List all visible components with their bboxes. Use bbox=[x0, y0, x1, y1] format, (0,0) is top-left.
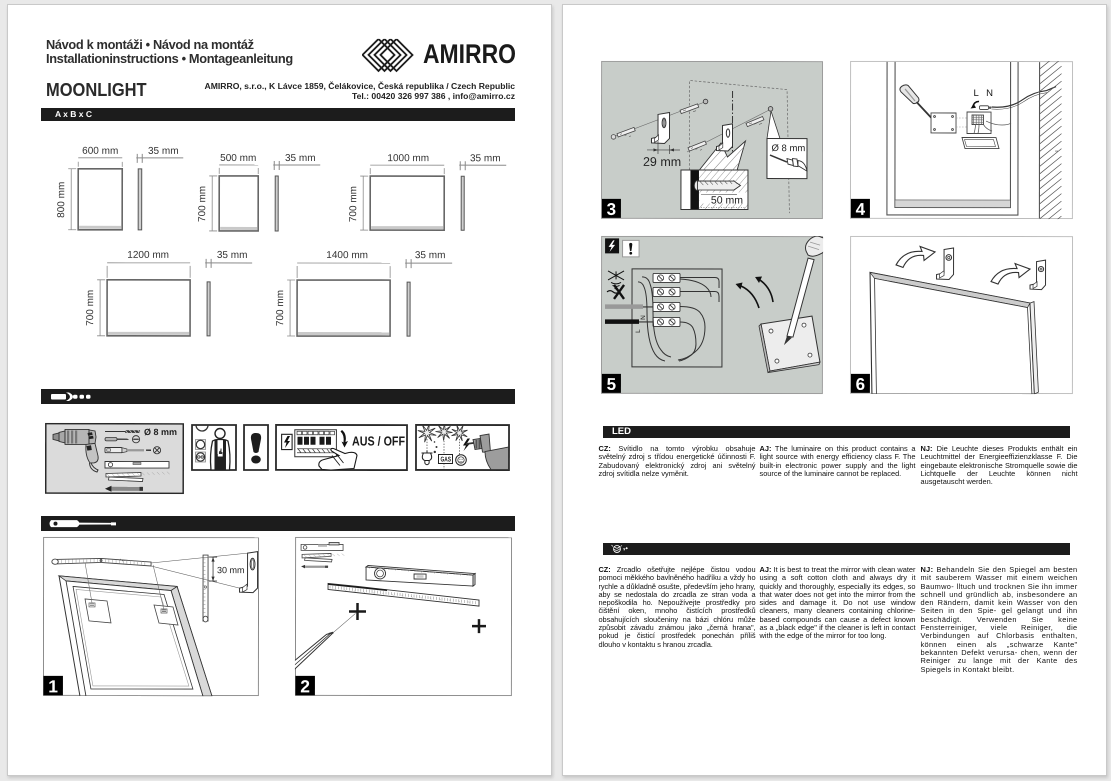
svg-text:35 mm: 35 mm bbox=[217, 250, 248, 261]
svg-text:6: 6 bbox=[855, 375, 864, 394]
svg-text:29 mm: 29 mm bbox=[642, 155, 680, 169]
svg-text:700 mm: 700 mm bbox=[85, 290, 96, 326]
svg-text:Ø 8 mm: Ø 8 mm bbox=[144, 427, 177, 437]
svg-text:700 mm: 700 mm bbox=[348, 186, 359, 222]
svg-text:1: 1 bbox=[48, 676, 58, 696]
svg-text:L: L bbox=[634, 329, 641, 333]
svg-text:700 mm: 700 mm bbox=[275, 290, 286, 326]
svg-text:700 mm: 700 mm bbox=[197, 186, 208, 222]
svg-text:L N: L N bbox=[973, 88, 995, 99]
svg-text:35 mm: 35 mm bbox=[415, 250, 446, 261]
svg-text:Ø 8 mm: Ø 8 mm bbox=[771, 143, 805, 154]
svg-text:N: N bbox=[639, 315, 646, 320]
svg-text:5: 5 bbox=[606, 375, 615, 394]
svg-text:4: 4 bbox=[855, 200, 865, 219]
svg-text:30 mm: 30 mm bbox=[217, 565, 245, 575]
svg-text:800 mm: 800 mm bbox=[56, 182, 67, 218]
svg-text:35 mm: 35 mm bbox=[148, 146, 179, 157]
svg-text:GAS: GAS bbox=[440, 456, 451, 463]
svg-text:2: 2 bbox=[300, 676, 310, 696]
svg-text:600 mm: 600 mm bbox=[82, 146, 118, 157]
svg-text:1200 mm: 1200 mm bbox=[127, 250, 169, 261]
svg-text:35 mm: 35 mm bbox=[470, 153, 501, 164]
svg-text:500 mm: 500 mm bbox=[220, 153, 256, 164]
svg-text:1000 mm: 1000 mm bbox=[387, 153, 429, 164]
svg-text:AUS / OFF: AUS / OFF bbox=[352, 434, 405, 449]
svg-text:35 mm: 35 mm bbox=[285, 153, 316, 164]
svg-text:3: 3 bbox=[606, 200, 615, 219]
svg-text:50 mm: 50 mm bbox=[710, 194, 742, 206]
svg-text:1400 mm: 1400 mm bbox=[326, 250, 368, 261]
